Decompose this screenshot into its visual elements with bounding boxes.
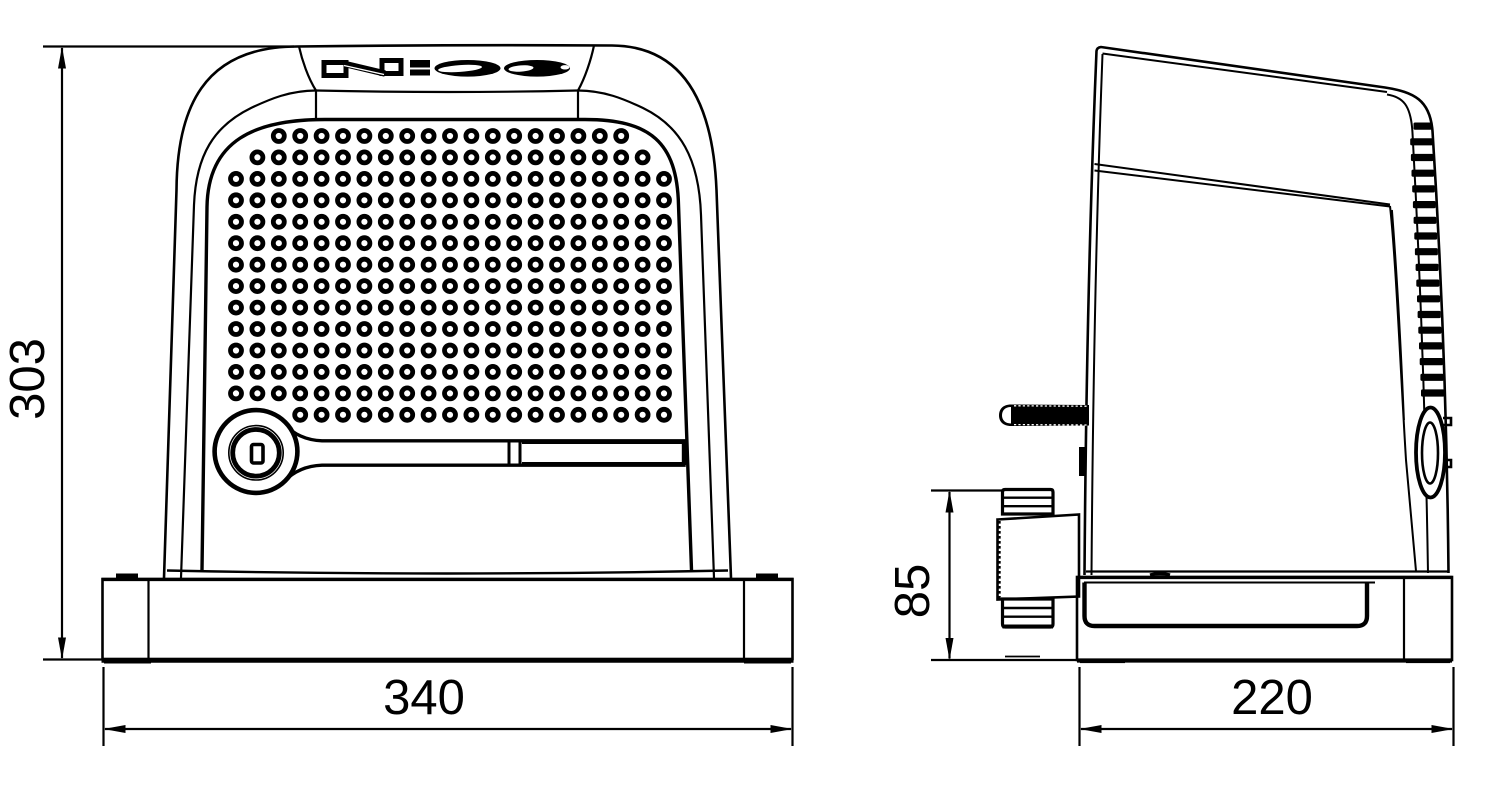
svg-text:220: 220 bbox=[1231, 671, 1313, 725]
svg-text:85: 85 bbox=[886, 564, 940, 619]
svg-text:340: 340 bbox=[383, 671, 465, 725]
svg-text:303: 303 bbox=[1, 338, 55, 420]
